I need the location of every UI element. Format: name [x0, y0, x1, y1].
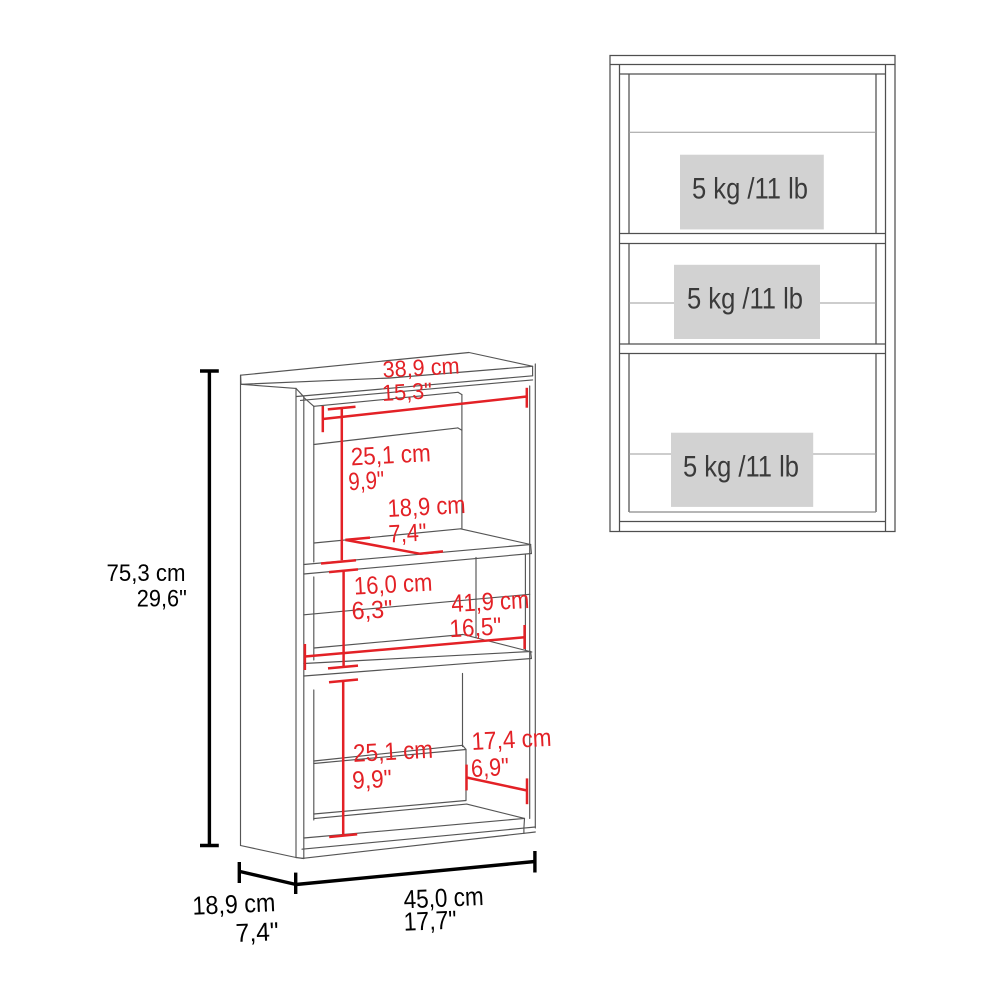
- svg-text:18,9 cm: 18,9 cm: [387, 491, 466, 523]
- svg-text:6,9": 6,9": [470, 753, 509, 783]
- svg-text:7,4": 7,4": [388, 519, 427, 549]
- svg-text:15,3": 15,3": [381, 377, 432, 406]
- svg-text:17,4 cm: 17,4 cm: [471, 724, 552, 756]
- svg-text:29,6": 29,6": [137, 586, 187, 613]
- svg-text:5 kg /11 lb: 5 kg /11 lb: [692, 172, 808, 205]
- svg-text:7,4": 7,4": [235, 916, 279, 948]
- svg-text:6,3": 6,3": [351, 595, 393, 625]
- svg-text:75,3 cm: 75,3 cm: [107, 560, 186, 587]
- svg-text:5 kg /11 lb: 5 kg /11 lb: [683, 450, 799, 483]
- svg-text:18,9 cm: 18,9 cm: [192, 887, 276, 921]
- svg-text:9,9": 9,9": [351, 765, 392, 795]
- svg-text:16,5": 16,5": [449, 613, 502, 644]
- svg-text:25,1 cm: 25,1 cm: [352, 736, 433, 768]
- svg-text:17,7": 17,7": [403, 905, 457, 937]
- svg-text:5 kg /11 lb: 5 kg /11 lb: [687, 283, 803, 316]
- svg-text:9,9": 9,9": [348, 466, 385, 496]
